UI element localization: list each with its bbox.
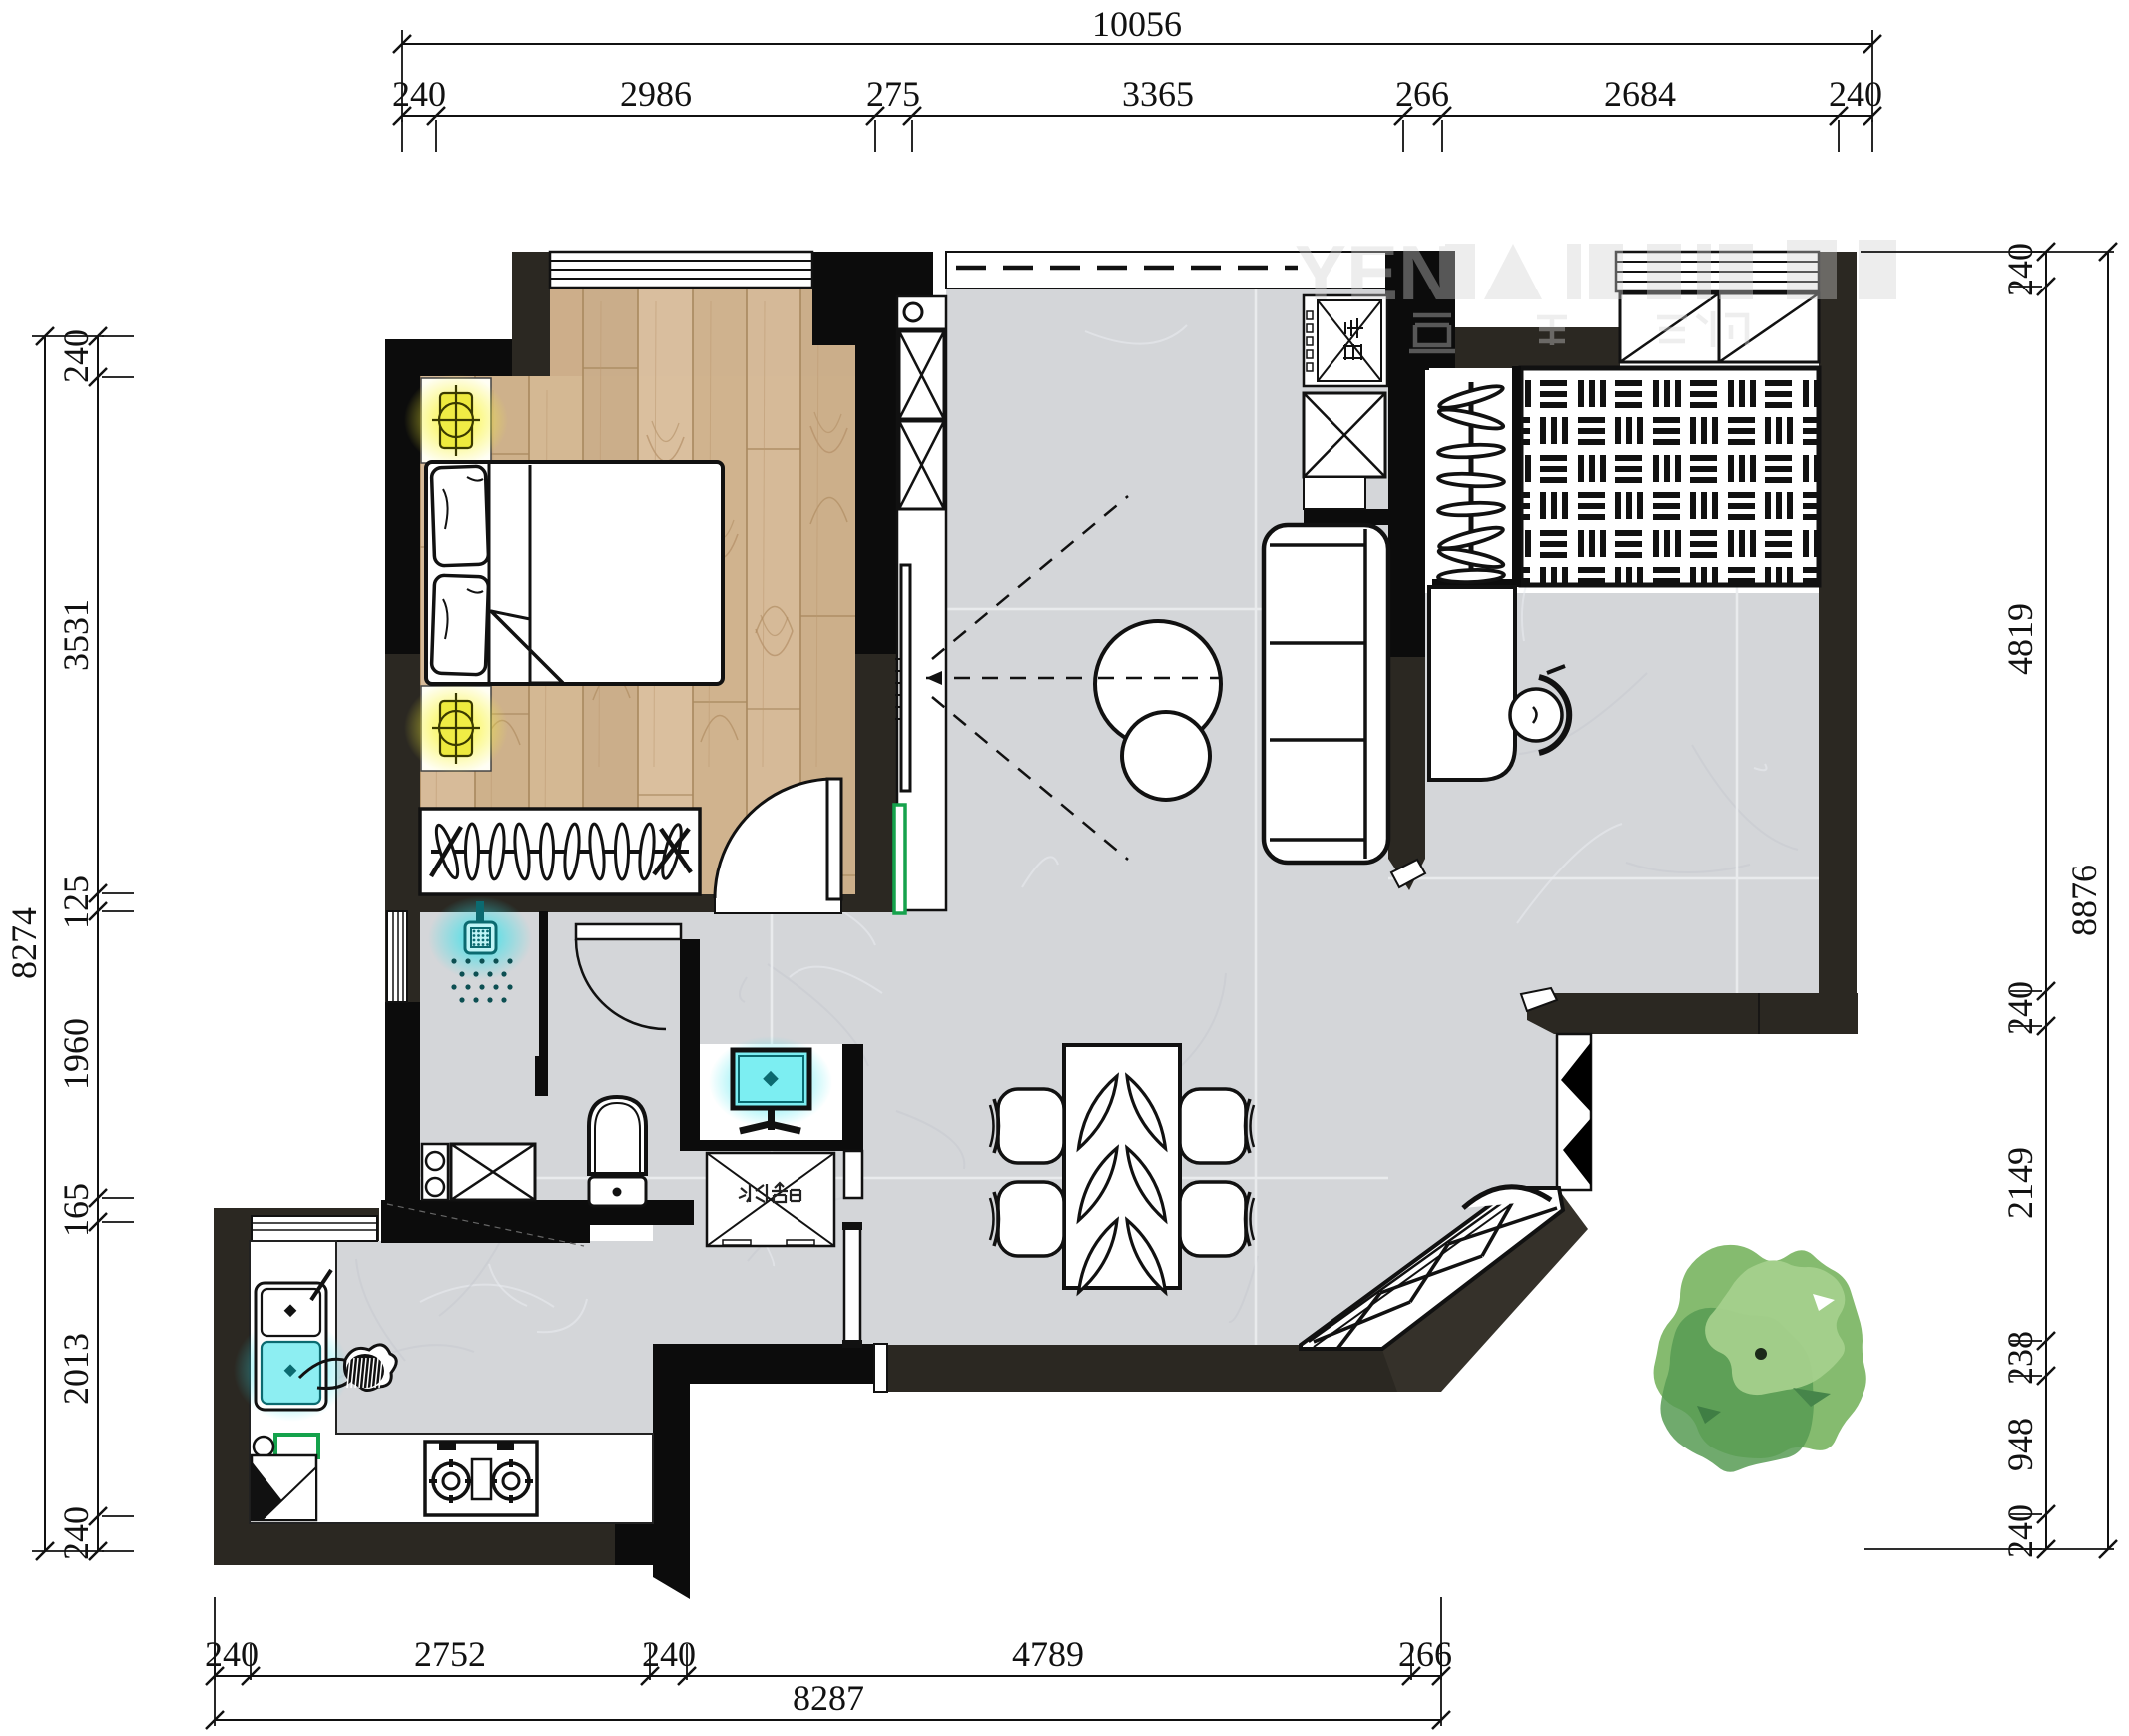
svg-text:240: 240 bbox=[2000, 243, 2040, 296]
svg-text:4819: 4819 bbox=[2000, 603, 2040, 675]
svg-text:3531: 3531 bbox=[56, 599, 96, 671]
svg-text:240: 240 bbox=[642, 1634, 696, 1674]
svg-text:8274: 8274 bbox=[4, 907, 44, 979]
svg-text:238: 238 bbox=[2000, 1331, 2040, 1385]
svg-text:3365: 3365 bbox=[1122, 74, 1194, 114]
svg-text:240: 240 bbox=[56, 1506, 96, 1560]
svg-text:4789: 4789 bbox=[1012, 1634, 1084, 1674]
svg-text:240: 240 bbox=[2000, 1504, 2040, 1558]
svg-text:8287: 8287 bbox=[793, 1678, 864, 1718]
svg-text:2684: 2684 bbox=[1604, 74, 1676, 114]
svg-text:2013: 2013 bbox=[56, 1333, 96, 1405]
svg-text:275: 275 bbox=[866, 74, 920, 114]
svg-text:125: 125 bbox=[56, 875, 96, 929]
svg-text:10056: 10056 bbox=[1092, 4, 1182, 44]
svg-text:240: 240 bbox=[205, 1634, 259, 1674]
svg-text:2149: 2149 bbox=[2000, 1147, 2040, 1219]
svg-text:266: 266 bbox=[1398, 1634, 1452, 1674]
svg-text:1960: 1960 bbox=[56, 1018, 96, 1090]
svg-text:YEN: YEN bbox=[1295, 229, 1454, 316]
svg-text:948: 948 bbox=[2000, 1418, 2040, 1471]
svg-text:266: 266 bbox=[1395, 74, 1449, 114]
svg-text:8876: 8876 bbox=[2064, 865, 2104, 936]
svg-text:2986: 2986 bbox=[620, 74, 692, 114]
svg-text:240: 240 bbox=[56, 329, 96, 383]
svg-text:240: 240 bbox=[2000, 981, 2040, 1035]
svg-text:240: 240 bbox=[1829, 74, 1882, 114]
svg-text:240: 240 bbox=[392, 74, 446, 114]
svg-text:165: 165 bbox=[56, 1183, 96, 1237]
svg-text:2752: 2752 bbox=[414, 1634, 486, 1674]
